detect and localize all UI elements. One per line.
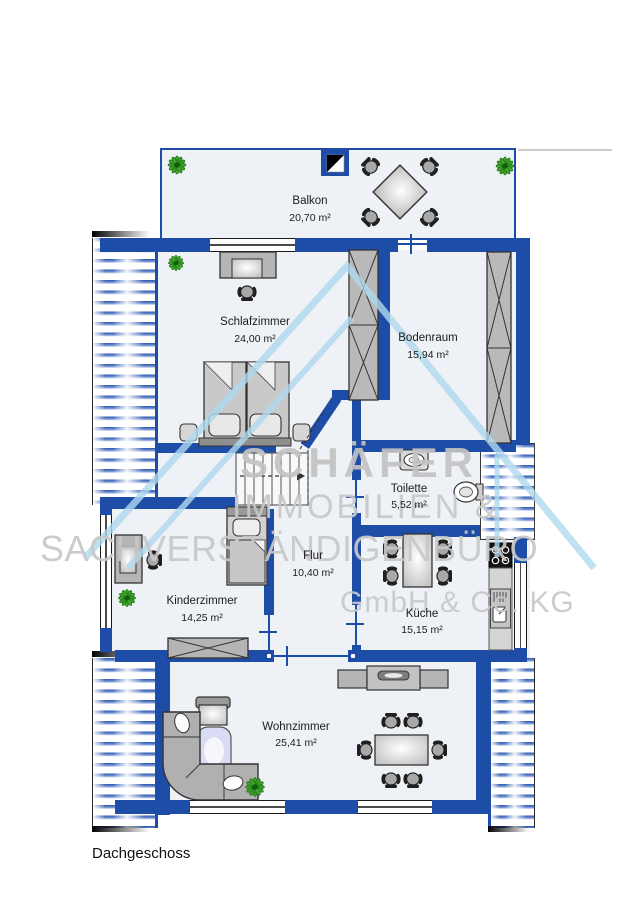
wall [158,662,170,815]
window [190,800,285,814]
floor-plan-page: SCHÄFER IMMOBILIEN & SACHVERSTÄNDIGENBÜR… [0,0,635,900]
wall [100,505,112,515]
balcony-outline [160,148,516,240]
door-post [348,650,358,662]
room-label-balkon: Balkon [292,195,327,207]
wall [432,800,488,814]
wall [476,650,488,814]
wall [332,390,390,400]
wall [358,650,516,662]
wall [514,648,527,662]
room-area-wohnzimmer: 25,41 m² [275,737,316,749]
watermark-line4: GmbH & Co. KG [340,588,575,618]
door-tick [286,646,288,666]
door-tick [346,623,364,625]
window [210,238,295,252]
door-post [264,650,274,662]
roof-slope-hatch-left-upper [92,238,158,505]
door-tick [259,631,277,633]
watermark-line3: SACHVERSTÄNDIGENBÜRO [40,531,538,567]
room-label-kueche: Küche [406,608,439,620]
room-label-bodenraum: Bodenraum [398,332,457,344]
wall [376,238,390,400]
room-area-kinderzimmer: 14,25 m² [181,612,222,624]
roof-edge-shadow [92,826,158,832]
wall [516,238,530,445]
wall [285,800,358,814]
balcony-door [398,243,427,245]
roof-edge-shadow [92,231,158,237]
room-area-schlafzimmer: 24,00 m² [234,333,275,345]
room-area-bodenraum: 15,94 m² [407,349,448,361]
wall [100,238,210,252]
watermark-company-name: SCHÄFER [240,442,478,484]
reference-line [518,149,612,151]
wall [100,497,235,509]
room-area-balkon: 20,70 m² [289,212,330,224]
roof-slope-hatch-right-lower [488,658,535,828]
room-label-wohnzimmer: Wohnzimmer [262,721,330,733]
room-label-toilette: Toilette [391,483,427,495]
roof-edge-shadow [488,826,535,832]
room-label-kinderzimmer: Kinderzimmer [167,595,238,607]
wall [427,238,530,252]
window [358,800,432,814]
door-tick [410,234,412,254]
room-area-kueche: 15,15 m² [401,624,442,636]
wall [100,628,112,652]
wall [115,650,264,662]
floor-title: Dachgeschoss [92,845,190,862]
room-label-schlafzimmer: Schlafzimmer [220,316,290,328]
wall [115,800,190,814]
room-label-flur: Flur [303,550,323,562]
watermark-line2: IMMOBILIEN & [232,490,500,524]
room-area-toilette: 5,52 m² [391,499,427,511]
room-area-flur: 10,40 m² [292,567,333,579]
